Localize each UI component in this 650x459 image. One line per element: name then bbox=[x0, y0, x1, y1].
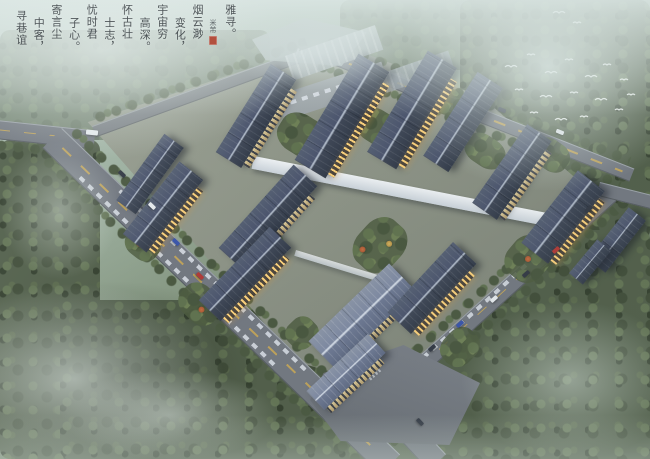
calligraphy-column: 士志， bbox=[102, 17, 115, 90]
accent-tree bbox=[385, 240, 393, 248]
artist-signature: 米芾 bbox=[208, 19, 218, 33]
calligraphy-column: 宇宙穷 bbox=[155, 4, 168, 90]
calligraphy-column: 雅寻。 bbox=[223, 4, 236, 90]
calligraphy-column: 变化， bbox=[173, 17, 186, 90]
artist-signature-block: 米芾 bbox=[208, 19, 218, 90]
calligraphy-column: 怀古壮 bbox=[120, 4, 133, 90]
red-seal-stamp-icon bbox=[209, 36, 217, 45]
calligraphy-column: 子心。 bbox=[67, 17, 80, 90]
calligraphy-panel: 雅寻。 米芾 烟云渺 变化， 宇宙穷 高深。 怀古壮 士志， 忧时君 子心。 寄… bbox=[14, 4, 236, 90]
calligraphy-column: 烟云渺 bbox=[190, 4, 203, 90]
calligraphy-column: 寻巷谊 bbox=[14, 10, 27, 90]
accent-tree bbox=[524, 255, 532, 263]
calligraphy-column: 忧时君 bbox=[85, 4, 98, 90]
calligraphy-column: 中客， bbox=[32, 17, 45, 90]
aerial-architectural-rendering: 雅寻。 米芾 烟云渺 变化， 宇宙穷 高深。 怀古壮 士志， 忧时君 子心。 寄… bbox=[0, 0, 650, 459]
accent-tree bbox=[358, 245, 366, 253]
calligraphy-column: 寄言尘 bbox=[49, 4, 62, 90]
calligraphy-column: 高深。 bbox=[137, 17, 150, 90]
